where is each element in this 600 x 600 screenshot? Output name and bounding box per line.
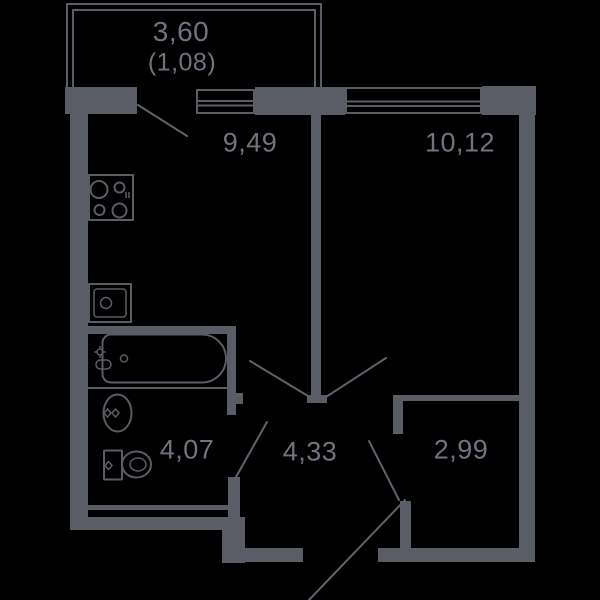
kitchen-door-swing: [250, 361, 308, 396]
kitchen-sink-icon: [86, 284, 131, 322]
wall-storage-top: [393, 395, 520, 401]
balcony-area-label: 3,60: [153, 16, 210, 48]
bathroom-area-label: 4,07: [160, 435, 215, 466]
storage-area-label: 2,99: [434, 435, 489, 466]
wall-bottom-center: [222, 548, 303, 562]
living-room-area-label: 10,12: [425, 128, 495, 159]
wall-divider-end-cap: [307, 395, 327, 403]
washbasin-icon: [104, 395, 132, 432]
wall-bottom-right: [378, 548, 535, 562]
wall-top-center-block: [255, 87, 345, 115]
hallway-area-label: 4,33: [283, 437, 338, 468]
storage-door-swing: [369, 441, 399, 500]
wall-bathroom-door-nub: [236, 393, 243, 404]
wall-entrance-stub: [400, 501, 411, 548]
wall-bathroom-right-lower: [228, 477, 240, 518]
bathroom-door-swing: [236, 422, 267, 477]
stove-icon: [89, 175, 133, 220]
wall-bathroom-bottom: [88, 505, 236, 510]
bathtub-icon: [88, 335, 235, 389]
wall-top-right-block: [482, 86, 536, 115]
floor-plan-drawing: [0, 0, 600, 600]
kitchen-area-label: 9,49: [223, 128, 278, 159]
wall-kitchen-room-divider: [311, 115, 321, 396]
wall-bathroom-right-upper: [227, 334, 236, 415]
kitchen-window: [196, 90, 255, 113]
wall-top-left-block: [65, 87, 137, 114]
floor-plan: 3,60 (1,08) 9,49 10,12 4,07 4,33 2,99: [0, 0, 600, 600]
living-room-door-swing: [326, 358, 386, 397]
living-room-window: [345, 88, 482, 113]
balcony-door-swing: [138, 105, 187, 136]
wall-storage-door-stub: [393, 395, 403, 434]
wall-right: [519, 115, 535, 562]
wall-bottom-left: [70, 517, 245, 530]
wall-left: [70, 114, 88, 530]
toilet-icon: [104, 451, 151, 480]
wall-bathroom-top: [88, 326, 236, 334]
balcony-reduced-area-label: (1,08): [148, 49, 216, 78]
